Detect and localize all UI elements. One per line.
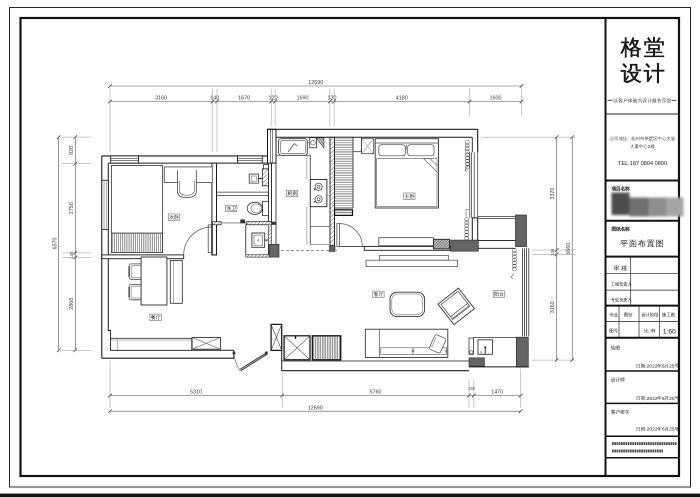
svg-text:6: 6	[662, 427, 665, 433]
svg-text::: :	[627, 136, 628, 141]
svg-text:2750: 2750	[69, 202, 75, 214]
svg-text:3160: 3160	[550, 301, 556, 313]
svg-text::2022: :2022	[645, 364, 658, 370]
svg-text:2860: 2860	[69, 298, 75, 310]
svg-text:4180: 4180	[396, 95, 408, 101]
svg-text:1:60: 1:60	[663, 329, 676, 336]
svg-text:5760: 5760	[370, 389, 382, 395]
svg-text:TEL:187 0804 0800: TEL:187 0804 0800	[618, 161, 667, 167]
svg-text:6: 6	[662, 396, 665, 402]
svg-text:1670: 1670	[238, 95, 250, 101]
svg-text:6: 6	[662, 364, 665, 370]
svg-text:1600: 1600	[490, 95, 502, 101]
svg-text::2022: :2022	[645, 427, 658, 433]
svg-text:12690: 12690	[308, 405, 323, 411]
svg-text:2: 2	[648, 144, 651, 149]
svg-text:1690: 1690	[297, 95, 309, 101]
svg-text:6660: 6660	[566, 243, 572, 255]
svg-text:3370: 3370	[550, 188, 556, 200]
svg-text:6570: 6570	[52, 238, 58, 250]
svg-text:120: 120	[269, 95, 278, 101]
svg-text:25: 25	[669, 427, 675, 433]
svg-text:140: 140	[210, 95, 219, 101]
svg-text:130: 130	[328, 95, 337, 101]
svg-text:25: 25	[669, 396, 675, 402]
svg-text:820: 820	[69, 146, 75, 155]
svg-text:5310: 5310	[190, 389, 202, 395]
svg-text:3160: 3160	[155, 95, 167, 101]
svg-text:12690: 12690	[308, 80, 323, 86]
svg-text::2022: :2022	[645, 396, 658, 402]
svg-text:25: 25	[669, 364, 675, 370]
svg-text:1470: 1470	[491, 389, 503, 395]
